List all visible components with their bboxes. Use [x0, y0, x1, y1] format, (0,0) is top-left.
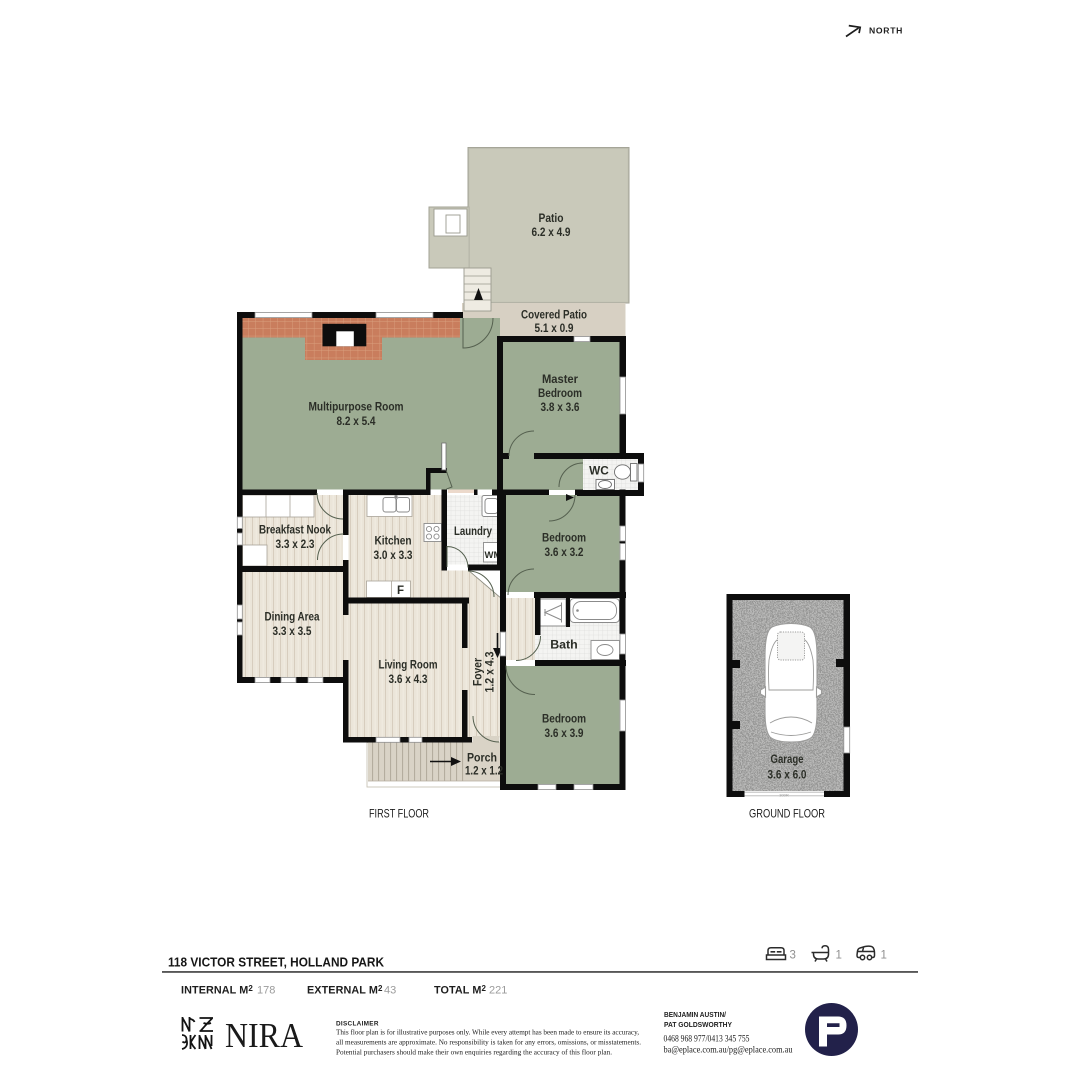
svg-text:ba@eplace.com.au/pg@eplace.com: ba@eplace.com.au/pg@eplace.com.au — [664, 1046, 793, 1056]
svg-text:Garage: Garage — [771, 752, 804, 766]
svg-text:0468 968 977/0413 345 755: 0468 968 977/0413 345 755 — [664, 1035, 750, 1045]
svg-text:3.6 x 3.9: 3.6 x 3.9 — [545, 726, 584, 740]
svg-text:3.6 x 4.3: 3.6 x 4.3 — [389, 672, 428, 686]
svg-text:3: 3 — [790, 950, 796, 962]
svg-text:221: 221 — [489, 985, 507, 997]
svg-text:WC: WC — [589, 464, 609, 478]
svg-text:1: 1 — [836, 950, 842, 962]
svg-text:TOTAL M2: TOTAL M2 — [434, 984, 486, 997]
svg-text:Covered Patio: Covered Patio — [521, 308, 587, 322]
svg-text:NIRA: NIRA — [225, 1016, 304, 1055]
svg-text:BENJAMIN AUSTIN/: BENJAMIN AUSTIN/ — [664, 1010, 727, 1019]
svg-text:Multipurpose Room: Multipurpose Room — [309, 400, 404, 414]
svg-text:43: 43 — [384, 985, 396, 997]
svg-text:1.2 x 1.2: 1.2 x 1.2 — [465, 764, 503, 778]
svg-text:Porch: Porch — [467, 751, 497, 765]
svg-text:6.2 x 4.9: 6.2 x 4.9 — [532, 225, 571, 239]
svg-text:GROUND FLOOR: GROUND FLOOR — [749, 807, 825, 821]
svg-text:all measurements are approxima: all measurements are approximate. No res… — [336, 1039, 641, 1047]
svg-text:3.8 x 3.6: 3.8 x 3.6 — [541, 400, 580, 414]
svg-text:Bedroom: Bedroom — [538, 386, 582, 400]
svg-text:3.3 x 3.5: 3.3 x 3.5 — [273, 624, 312, 638]
svg-text:INTERNAL M2: INTERNAL M2 — [181, 984, 253, 997]
svg-text:FIRST FLOOR: FIRST FLOOR — [369, 807, 429, 821]
svg-text:Laundry: Laundry — [454, 524, 492, 538]
svg-text:8.2 x 5.4: 8.2 x 5.4 — [337, 414, 376, 428]
svg-text:300R: 300R — [779, 792, 789, 797]
svg-text:Bath: Bath — [550, 638, 578, 652]
svg-text:1.2 x 4.3: 1.2 x 4.3 — [483, 651, 497, 692]
svg-text:DISCLAIMER: DISCLAIMER — [336, 1020, 379, 1027]
svg-text:5.1 x 0.9: 5.1 x 0.9 — [535, 321, 574, 335]
svg-text:Bedroom: Bedroom — [542, 712, 586, 726]
svg-text:118 VICTOR STREET, HOLLAND PAR: 118 VICTOR STREET, HOLLAND PARK — [168, 955, 385, 970]
svg-text:EXTERNAL M2: EXTERNAL M2 — [307, 984, 383, 997]
svg-text:1: 1 — [881, 950, 887, 962]
svg-text:Living Room: Living Room — [379, 658, 438, 672]
svg-text:Bedroom: Bedroom — [542, 531, 586, 545]
svg-text:Kitchen: Kitchen — [375, 534, 412, 548]
svg-text:Potential purchasers should ma: Potential purchasers should make their o… — [336, 1049, 612, 1057]
svg-text:3.0 x 3.3: 3.0 x 3.3 — [374, 548, 413, 562]
svg-text:NORTH: NORTH — [869, 26, 903, 36]
svg-text:Patio: Patio — [539, 211, 564, 225]
svg-text:PAT GOLDSWORTHY: PAT GOLDSWORTHY — [664, 1020, 732, 1029]
svg-text:Breakfast Nook: Breakfast Nook — [259, 523, 331, 537]
svg-text:3.3 x 2.3: 3.3 x 2.3 — [276, 537, 315, 551]
svg-text:Dining Area: Dining Area — [265, 610, 320, 624]
svg-text:Master: Master — [542, 372, 578, 386]
svg-text:3.6 x 6.0: 3.6 x 6.0 — [768, 768, 807, 782]
svg-text:This floor plan is for illustr: This floor plan is for illustrative purp… — [336, 1029, 639, 1037]
svg-text:3.6 x 3.2: 3.6 x 3.2 — [545, 545, 584, 559]
svg-text:F: F — [397, 585, 404, 597]
svg-text:178: 178 — [257, 985, 275, 997]
